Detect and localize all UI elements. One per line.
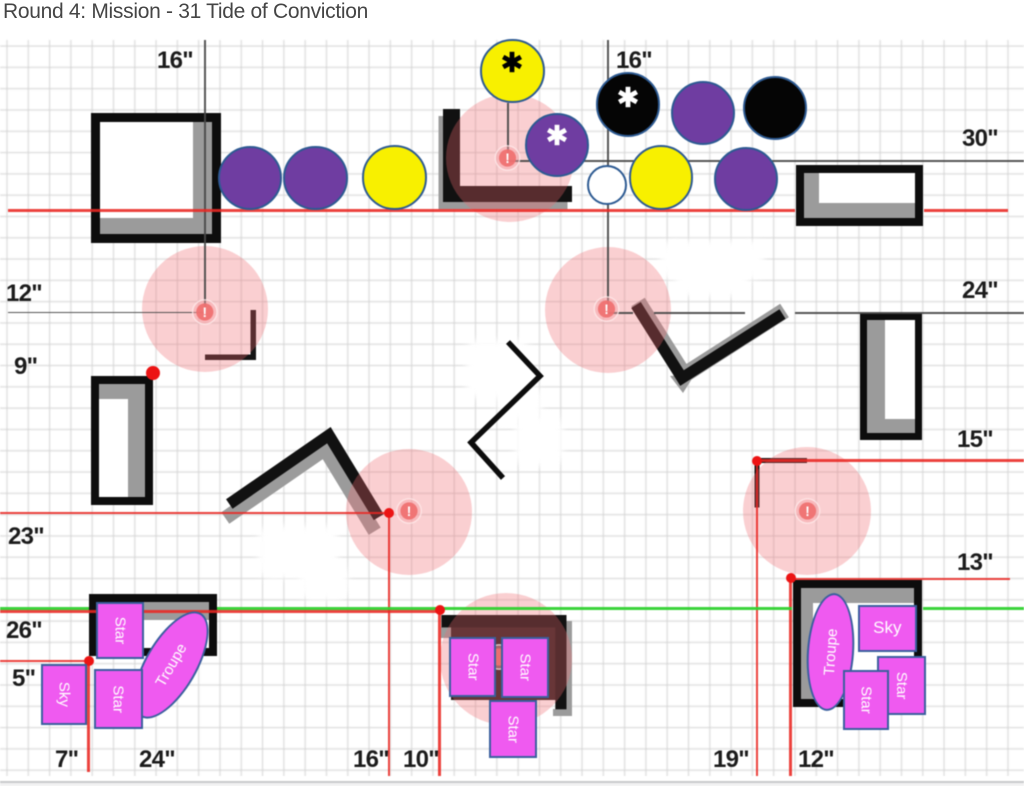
svg-text:!: ! xyxy=(604,302,609,317)
svg-text:!: ! xyxy=(203,305,208,320)
svg-text:!: ! xyxy=(407,504,412,519)
svg-text:!: ! xyxy=(505,151,510,166)
svg-text:!: ! xyxy=(805,504,810,519)
